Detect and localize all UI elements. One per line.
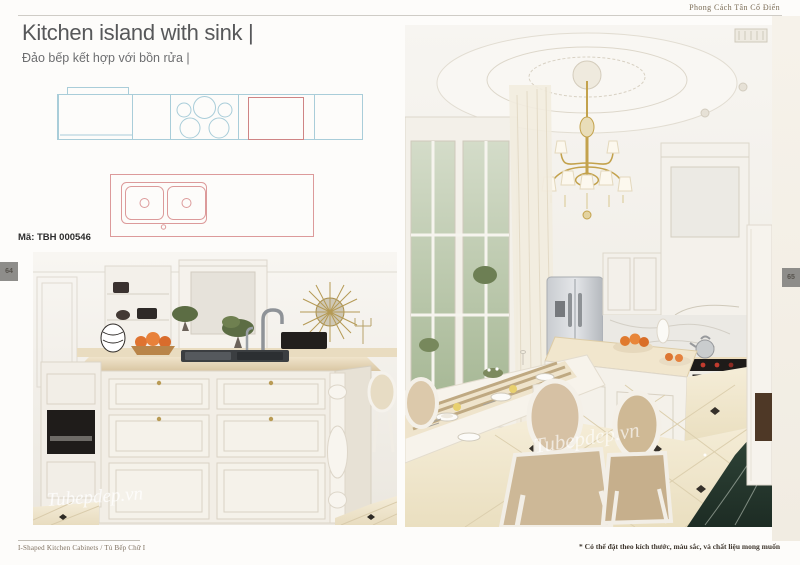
footer-customization-note: * Có thể đặt theo kích thước, màu sắc, v… (579, 542, 780, 551)
product-code: Mã: TBH 000546 (18, 232, 91, 243)
counter-outline (58, 88, 363, 140)
collection-style-label: Phong Cách Tân Cổ Điển (689, 3, 780, 12)
island-corner-column (328, 373, 348, 523)
counter-plan-drawing (57, 86, 363, 142)
page-number-left: 64 (0, 262, 18, 281)
page-subtitle-vietnamese: Đảo bếp kết hợp với bồn rửa | (22, 51, 190, 65)
garden-plant (473, 266, 497, 284)
header-rule (18, 15, 782, 16)
range-hood (661, 143, 749, 321)
footer-rule (18, 540, 140, 541)
lemon (453, 403, 461, 411)
kitchen-overview-photo: Tubepdep.vn (405, 25, 772, 527)
island-sink-drawing (110, 171, 314, 239)
upper-cabinets (603, 253, 661, 315)
left-oven-cabinet (41, 362, 101, 507)
right-column (747, 225, 772, 485)
dining-chair-back (405, 379, 437, 427)
page-number-right: 65 (782, 268, 800, 287)
centerpiece-flowers (483, 368, 503, 378)
footer-caption: I-Shaped Kitchen Cabinets / Tủ Bếp Chữ I (18, 544, 145, 552)
white-vase (657, 319, 669, 343)
sink-cutout-plan (249, 98, 304, 140)
catalog-page: Phong Cách Tân Cổ Điển Kitchen island wi… (0, 0, 800, 565)
kitchen-island-photo: Tubepdep.vn (33, 252, 397, 525)
island-sink-outline (111, 175, 314, 237)
wood-cabinet-side (755, 393, 772, 441)
page-title: Kitchen island with sink | (22, 20, 253, 46)
coffee-machine (281, 332, 327, 349)
range-hood-mantel (179, 260, 267, 354)
